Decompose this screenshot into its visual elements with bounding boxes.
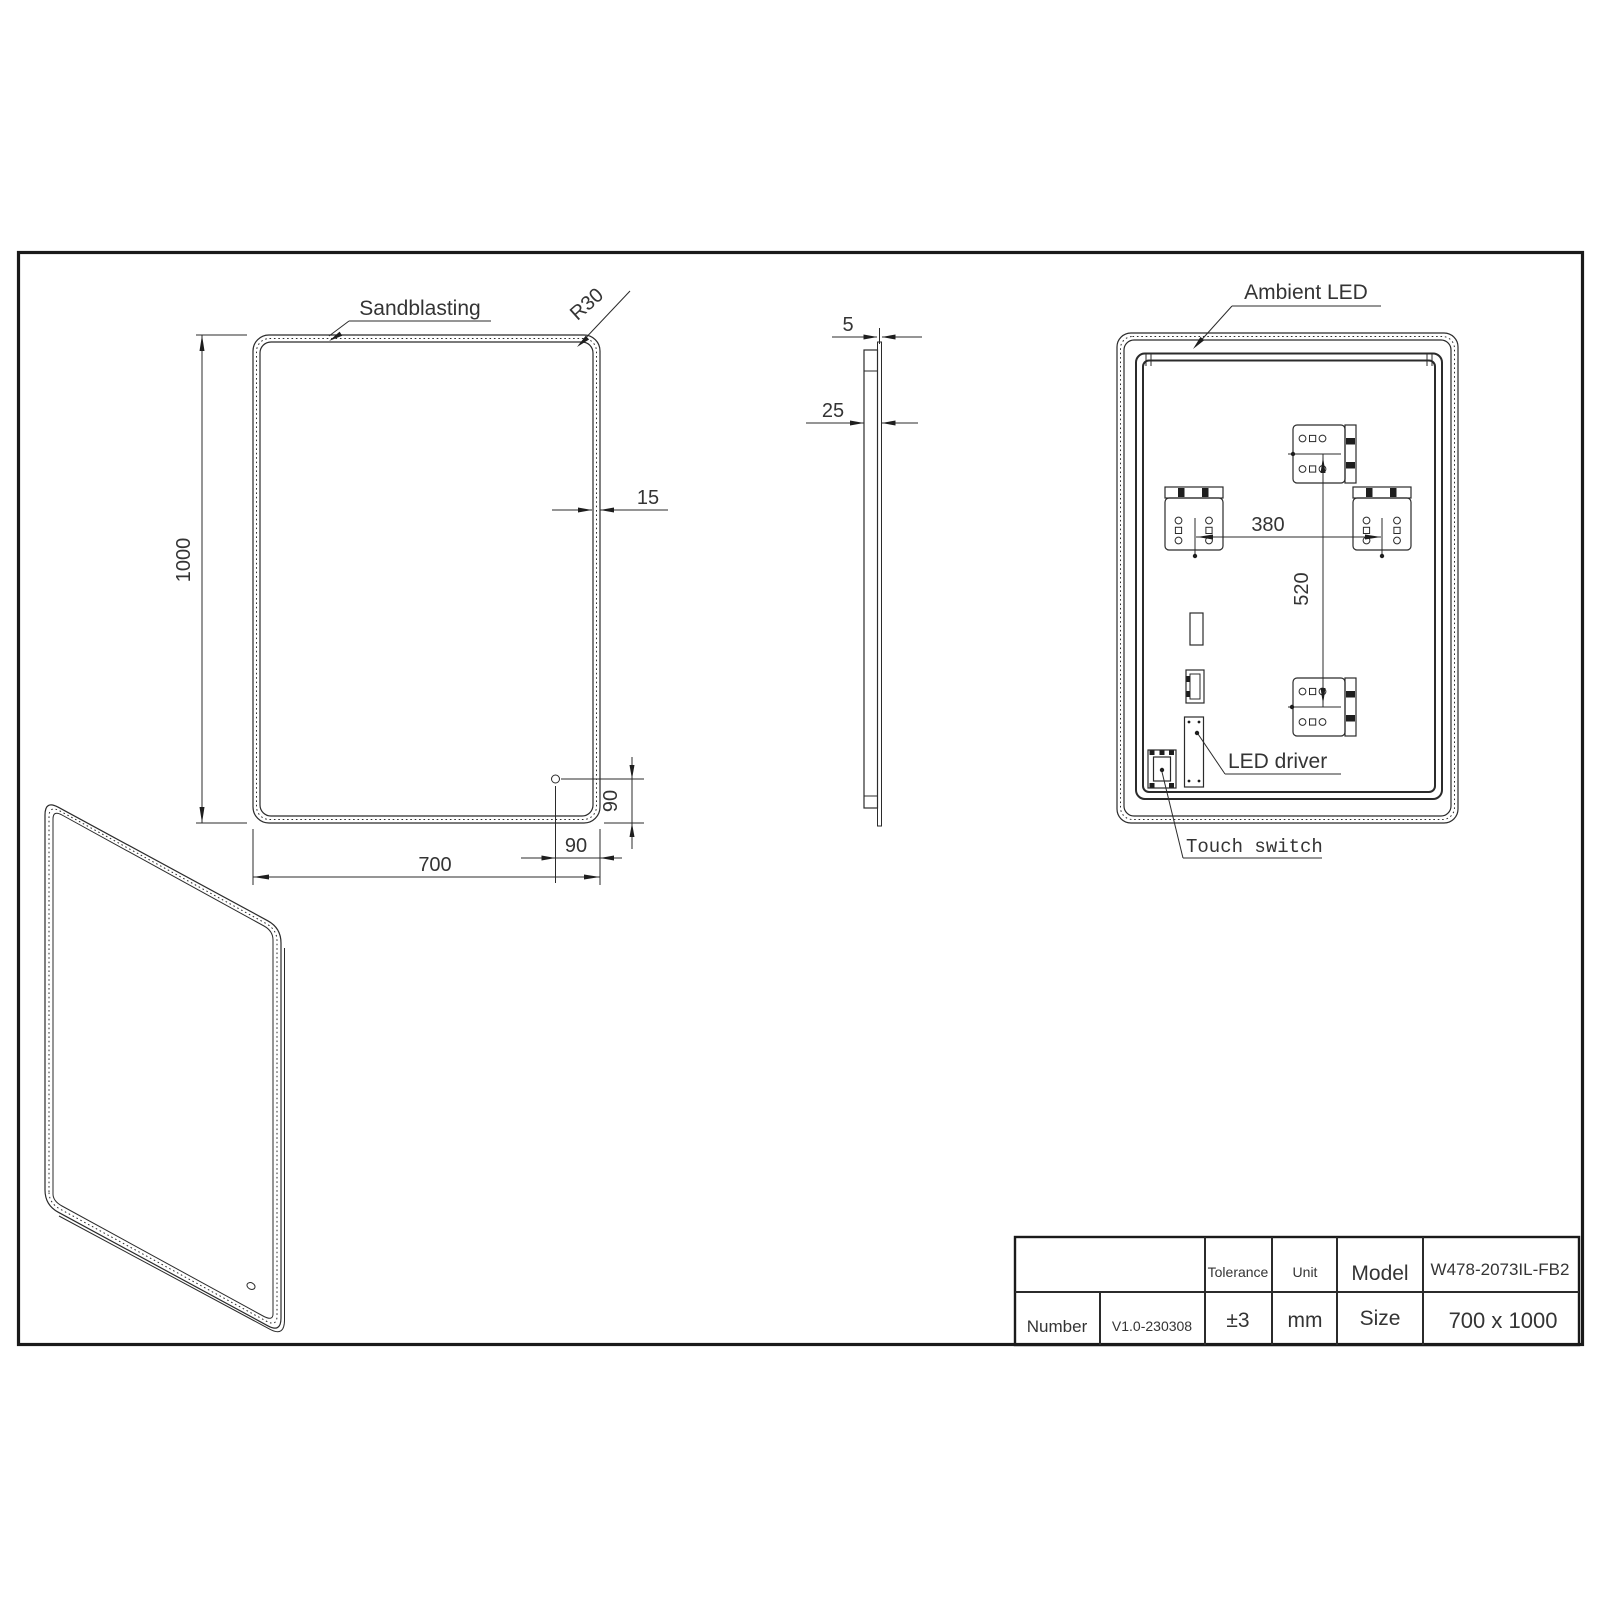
ambient-led-leader-arrow (1193, 337, 1204, 349)
back-view: 380 520 (1117, 281, 1458, 858)
drawing-canvas: Sandblasting R30 1000 700 (0, 0, 1600, 1600)
ambient-led-frame (1136, 354, 1442, 800)
dim-width-label: 700 (418, 854, 451, 876)
dim-glass-label: 5 (842, 314, 853, 336)
drawing-sheet: Sandblasting R30 1000 700 (0, 0, 1600, 1600)
dim-height: 1000 (173, 335, 247, 823)
dim-sensor-right-label: 90 (565, 835, 587, 857)
junction-box (1190, 613, 1203, 645)
sandblasting-label: Sandblasting (359, 297, 480, 320)
led-driver-box (1185, 717, 1204, 787)
tolerance-label: Tolerance (1208, 1264, 1269, 1280)
model-label: Model (1351, 1262, 1408, 1285)
dim-glass: 5 (832, 314, 922, 340)
unit-label: Unit (1293, 1264, 1318, 1280)
mounting-bracket-left (1165, 487, 1223, 550)
touch-switch-label: Touch switch (1186, 836, 1323, 858)
wire-connector (1186, 670, 1204, 703)
dim-depth: 25 (806, 400, 918, 426)
touch-sensor-mark (552, 775, 560, 783)
sandblasting-leader-arrow (329, 332, 342, 341)
model-value: W478-2073IL-FB2 (1431, 1260, 1570, 1279)
perspective-touch-sensor-mark (246, 1281, 256, 1291)
front-mirror-face (260, 342, 593, 816)
front-view: Sandblasting R30 1000 700 (173, 284, 668, 885)
radius-leader-arrow (577, 336, 589, 347)
led-driver-label: LED driver (1228, 750, 1327, 773)
dim-sensor-bottom-label: 90 (600, 790, 622, 812)
dim-depth-label: 25 (822, 400, 844, 422)
dim-bracket-vert-label: 520 (1291, 572, 1313, 605)
size-label: Size (1360, 1307, 1401, 1330)
number-value: V1.0-230308 (1112, 1318, 1192, 1334)
dim-bracket-span-label: 380 (1251, 514, 1284, 536)
ambient-led-label: Ambient LED (1244, 281, 1368, 304)
dim-bracket-vert: 520 (1291, 454, 1326, 707)
radius-callout: R30 (566, 284, 630, 347)
front-sandblast-band (253, 335, 600, 823)
title-block: Tolerance Unit Model W478-2073IL-FB2 Num… (1015, 1237, 1579, 1345)
radius-label: R30 (566, 284, 608, 325)
ambient-led-callout: Ambient LED (1193, 281, 1381, 349)
side-view: 5 25 (806, 314, 922, 826)
led-driver-callout: LED driver (1195, 731, 1341, 774)
dim-border: 15 (552, 487, 668, 513)
perspective-view (45, 805, 285, 1332)
size-value: 700 x 1000 (1449, 1308, 1558, 1333)
dim-border-label: 15 (637, 487, 659, 509)
unit-value: mm (1288, 1309, 1323, 1332)
number-label: Number (1027, 1317, 1088, 1336)
dim-height-label: 1000 (173, 538, 195, 583)
tolerance-value: ±3 (1226, 1309, 1249, 1332)
side-frame-profile (864, 350, 878, 808)
